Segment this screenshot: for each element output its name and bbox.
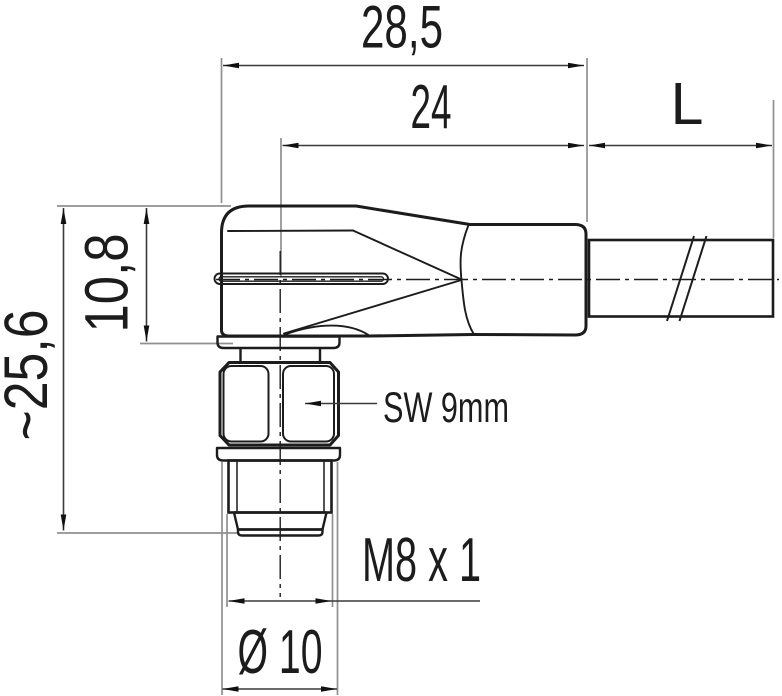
dimension-10-8: 10,8 — [73, 208, 147, 342]
label-thread-spec: M8 x 1 — [362, 526, 481, 595]
boot-hump-curve — [285, 326, 369, 335]
contact-slot-outer — [215, 274, 389, 285]
callout-sw9: SW 9mm — [305, 384, 509, 432]
body-inner-top-line — [228, 231, 353, 232]
cable — [589, 236, 773, 321]
extension-lines — [57, 58, 774, 695]
threaded-end — [217, 337, 340, 536]
body-outline — [222, 206, 587, 336]
body-bottom-lip — [218, 337, 340, 349]
dimension-25-6: ~25,6 — [0, 208, 64, 531]
dim-label-25-6: ~25,6 — [0, 310, 60, 441]
dim-label-28-5: 28,5 — [361, 0, 443, 61]
dim-label-10-8: 10,8 — [73, 234, 141, 333]
hex-facet-left — [224, 366, 269, 442]
cable-break-mark-1 — [667, 236, 694, 321]
body-vee-upper-line — [353, 231, 462, 280]
dimension-d10: Ø 10 — [223, 618, 338, 689]
dim-label-24: 24 — [411, 73, 452, 142]
dimension-L: L — [589, 71, 772, 146]
connector-dimension-drawing: 28,5 24 L 10,8 ~25,6 SW 9mm M8 x 1 Ø 10 — [0, 0, 782, 696]
dimension-24: 24 — [283, 73, 585, 146]
connector-body — [215, 206, 587, 336]
body-vee-lower-line — [284, 280, 462, 334]
dimension-28-5: 28,5 — [223, 0, 584, 66]
drawing-page: 28,5 24 L 10,8 ~25,6 SW 9mm M8 x 1 Ø 10 — [0, 0, 782, 696]
washer-flange — [217, 448, 340, 461]
label-flange-diameter: Ø 10 — [238, 618, 323, 687]
label-wrench-size: SW 9mm — [383, 384, 509, 432]
dimension-m8x1: M8 x 1 — [229, 526, 482, 601]
cable-break-mark-2 — [680, 236, 707, 321]
dim-label-L: L — [671, 71, 704, 137]
